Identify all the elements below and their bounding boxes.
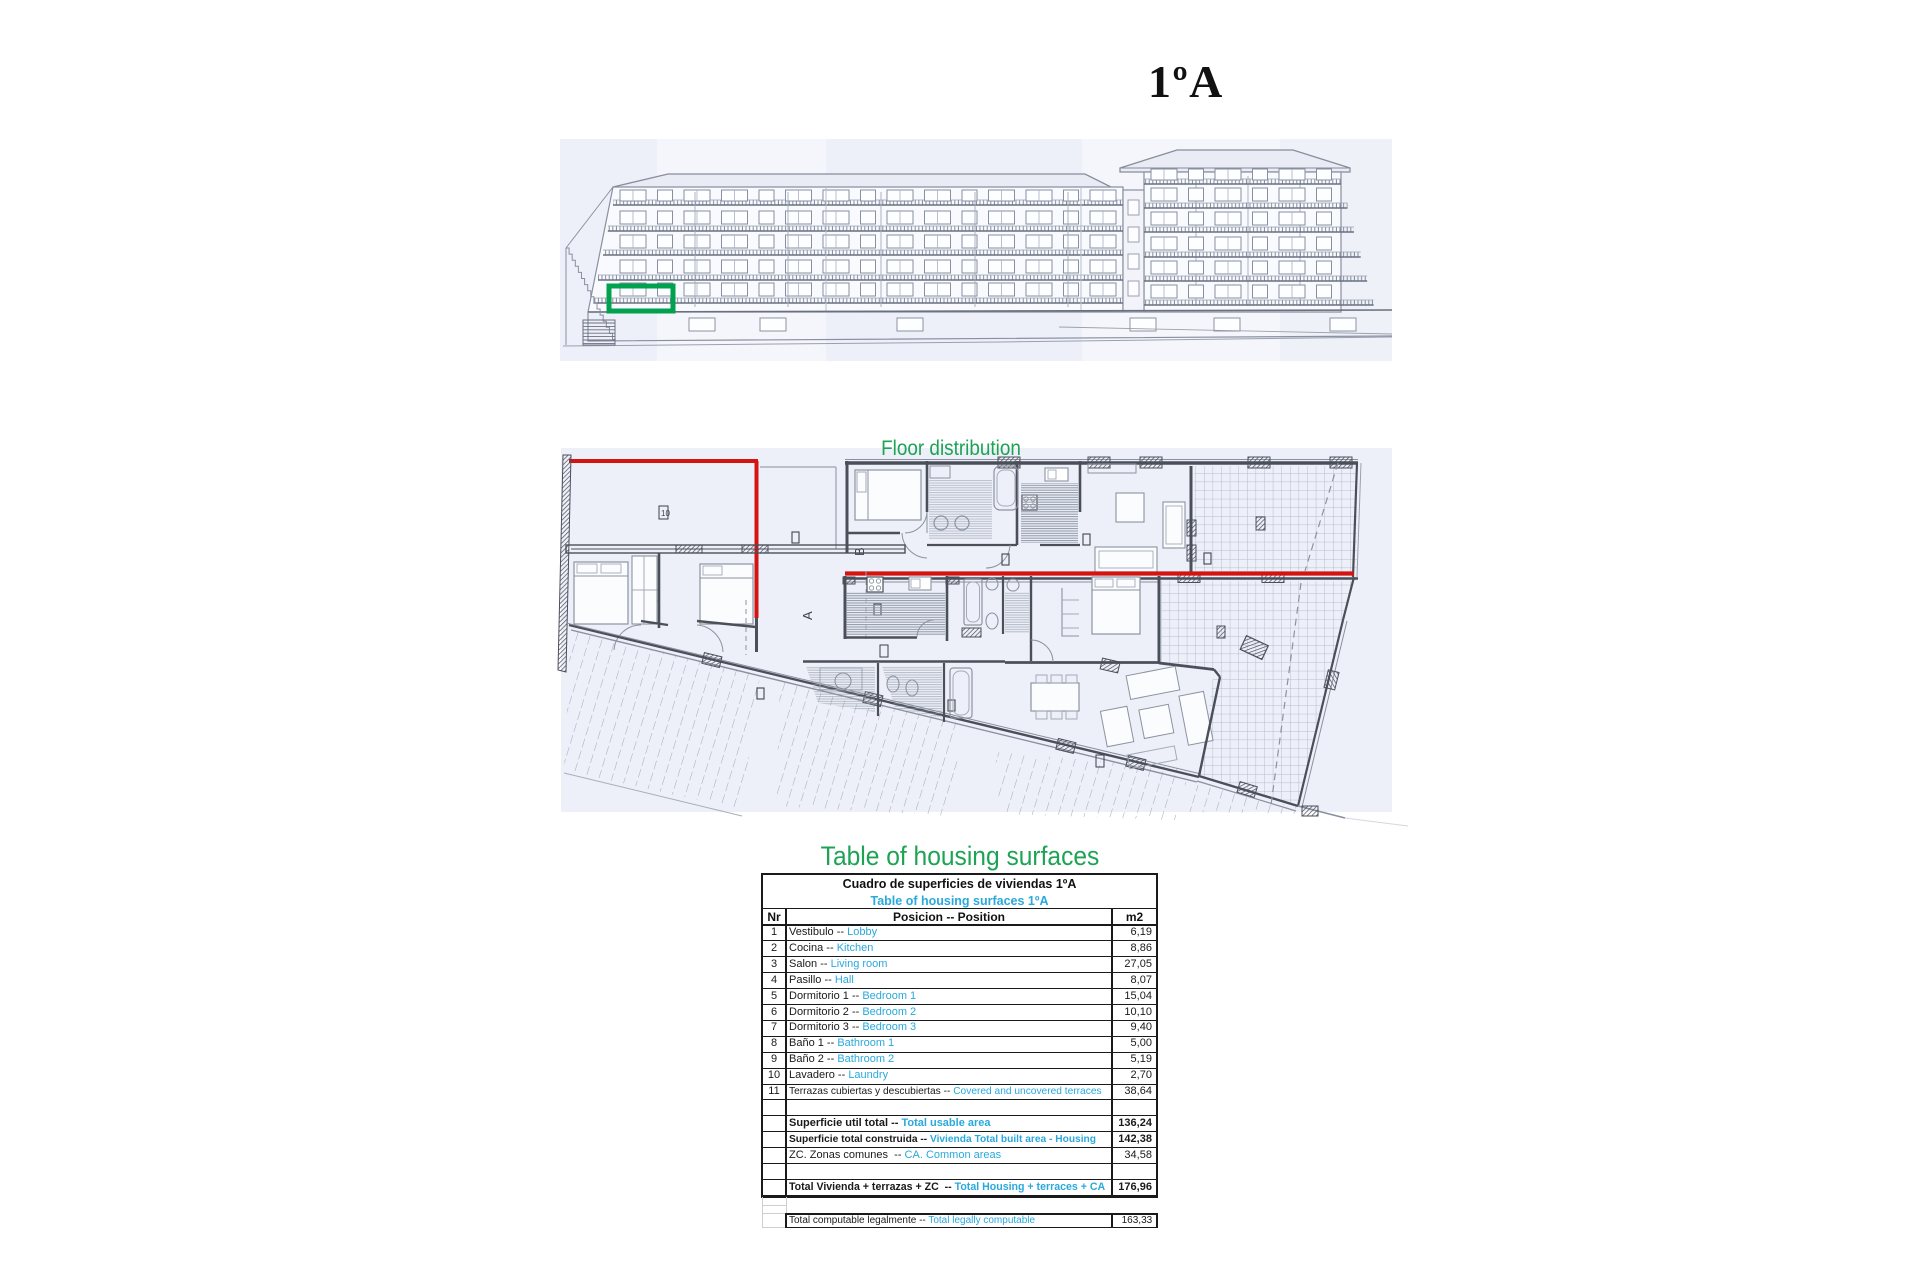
svg-text:A: A bbox=[800, 611, 815, 620]
svg-text:10: 10 bbox=[661, 509, 670, 518]
